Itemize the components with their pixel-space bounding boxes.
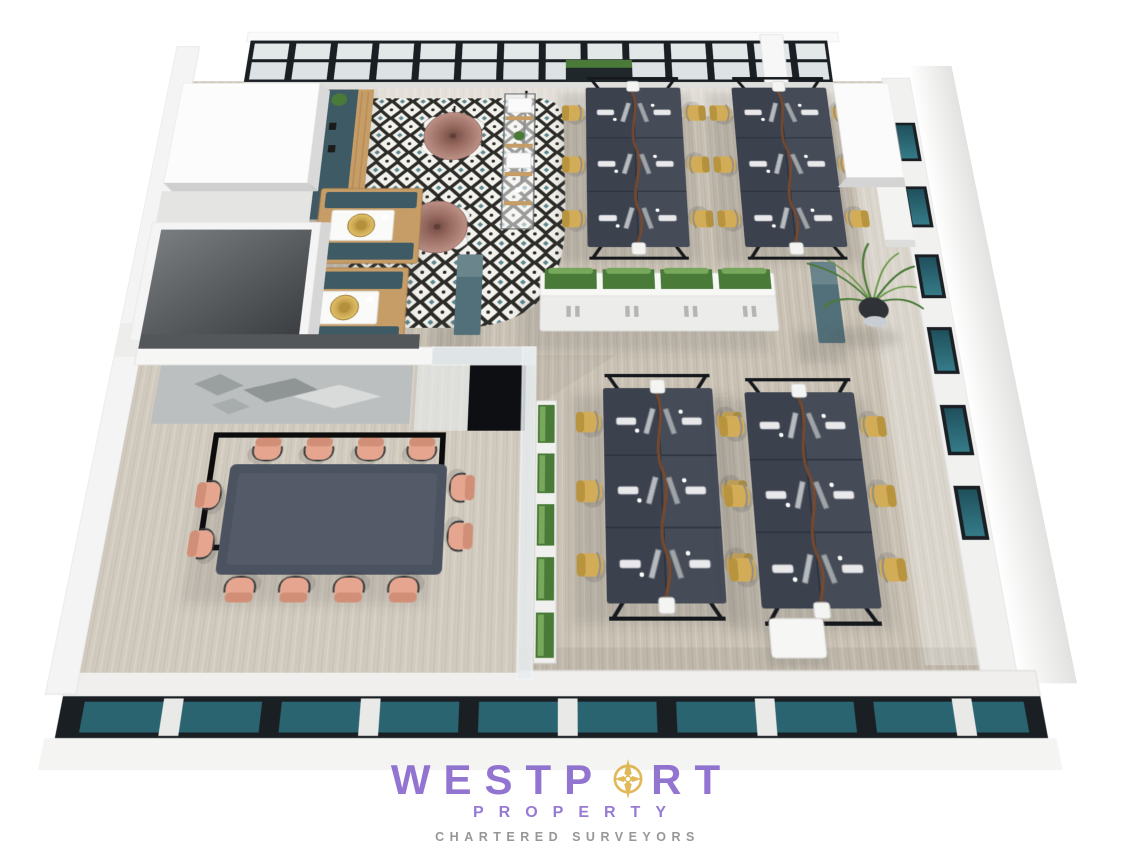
planter-row — [533, 401, 556, 663]
meeting-room-wall — [134, 347, 434, 365]
glass-reflection — [414, 365, 471, 431]
perspective-scene — [0, 0, 1124, 865]
corridor-floor — [156, 191, 313, 222]
utility-block-a — [162, 83, 331, 191]
glass-partition-top — [431, 347, 535, 365]
meeting-room — [74, 347, 537, 679]
shelving-unit — [501, 94, 535, 229]
storage-credenza — [519, 268, 781, 352]
floorplan-render: WESTP RT PROPERTY CHARTERED SURVEYORS — [0, 0, 1124, 865]
bottom-wall — [38, 671, 1063, 770]
office-plan — [29, 30, 1094, 770]
white-end-table — [763, 619, 830, 667]
wall-display — [467, 365, 526, 431]
